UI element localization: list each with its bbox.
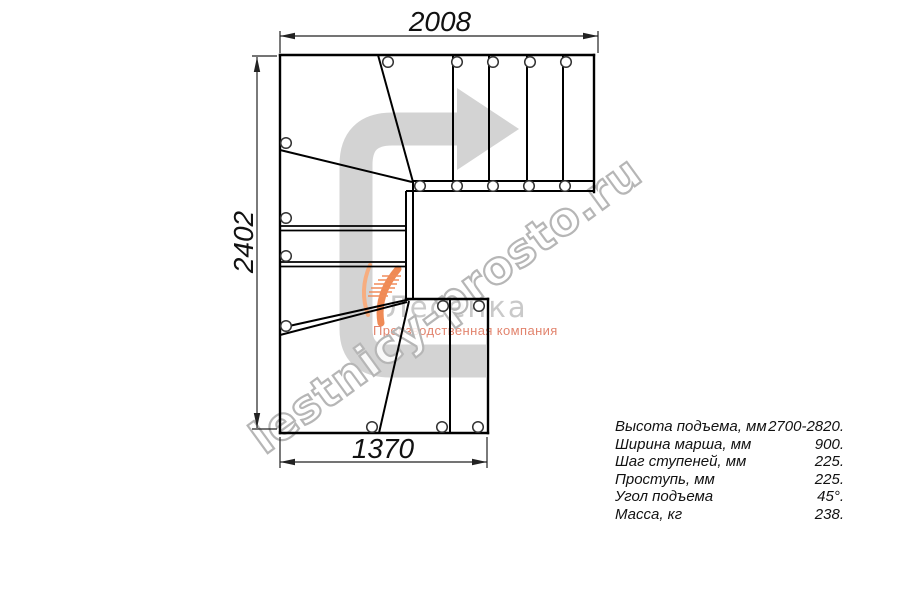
dimension-lines: [252, 31, 598, 468]
spec-row: Проступь, мм 225.: [615, 471, 844, 489]
stringer-band: [406, 181, 594, 299]
dimension-bottom-label: 1370: [323, 433, 443, 465]
stair-outline: [280, 55, 594, 433]
spec-value: 225.: [815, 453, 844, 471]
specs-table: Высота подъема, мм 2700-2820. Ширина мар…: [615, 418, 844, 523]
spec-row: Угол подъема 45°.: [615, 488, 844, 506]
spec-value: 900.: [815, 436, 844, 454]
dimension-left-label: 2402: [228, 182, 260, 302]
step-lines: [450, 55, 563, 433]
spec-label: Масса, кг: [615, 506, 682, 524]
stair-plan-drawing: Лесенка Производственная компания lestni…: [0, 0, 900, 600]
spec-value: 225.: [815, 471, 844, 489]
spec-label: Ширина марша, мм: [615, 436, 751, 454]
spec-row: Масса, кг 238.: [615, 506, 844, 524]
spec-value: 2700-2820.: [768, 418, 844, 436]
dimension-arrowheads: [254, 33, 598, 465]
spec-value: 45°.: [817, 488, 844, 506]
dimension-top-label: 2008: [380, 6, 500, 38]
spec-value: 238.: [815, 506, 844, 524]
spec-row: Ширина марша, мм 900.: [615, 436, 844, 454]
spec-label: Высота подъема, мм: [615, 418, 767, 436]
spec-label: Шаг ступеней, мм: [615, 453, 746, 471]
spec-label: Угол подъема: [615, 488, 713, 506]
spec-row: Высота подъема, мм 2700-2820.: [615, 418, 844, 436]
left-flight-step-lines: [280, 226, 406, 267]
spec-label: Проступь, мм: [615, 471, 715, 489]
winder-lines: [280, 55, 413, 433]
spec-row: Шаг ступеней, мм 225.: [615, 453, 844, 471]
